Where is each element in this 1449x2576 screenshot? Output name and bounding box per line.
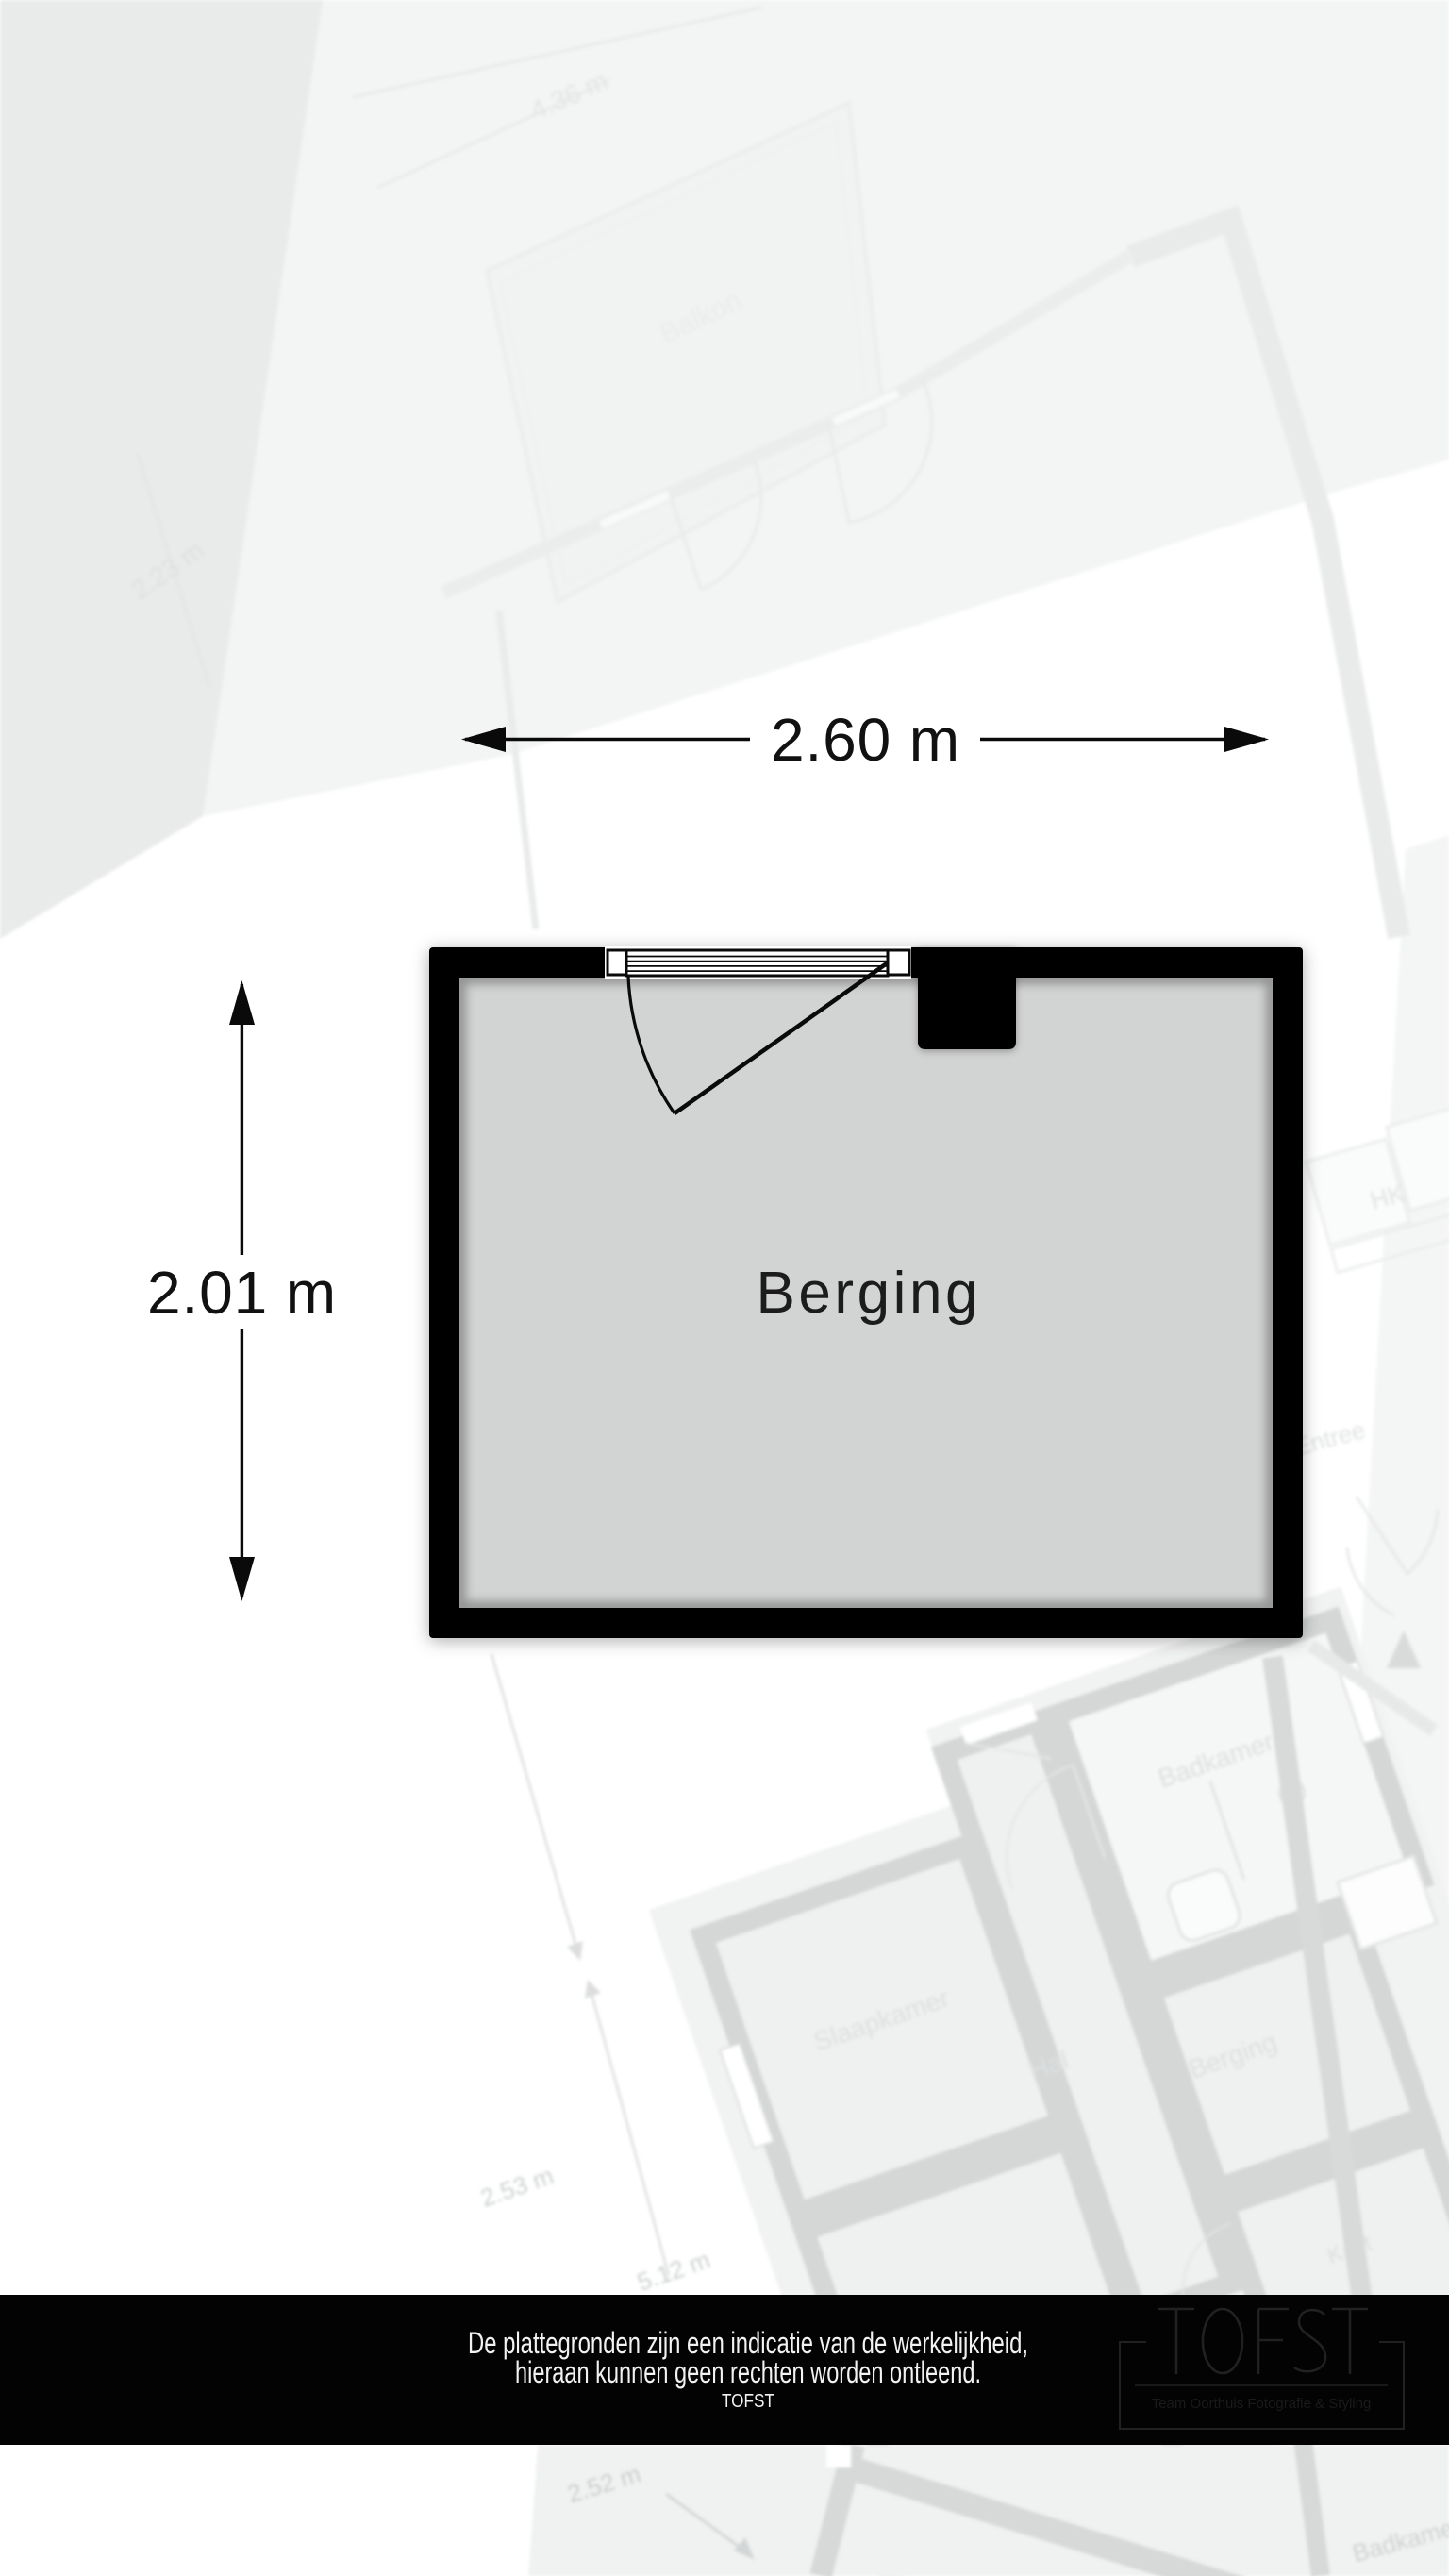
svg-text:hieraan kunnen geen rechten wo: hieraan kunnen geen rechten worden ontle… xyxy=(515,2355,981,2389)
svg-text:2.60 m: 2.60 m xyxy=(771,706,959,774)
svg-text:TOFST: TOFST xyxy=(722,2391,774,2412)
svg-text:Berging: Berging xyxy=(757,1261,978,1326)
svg-text:2.01 m: 2.01 m xyxy=(147,1259,336,1327)
svg-text:Team Oorthuis Fotografie & Sty: Team Oorthuis Fotografie & Styling xyxy=(1152,2396,1372,2412)
